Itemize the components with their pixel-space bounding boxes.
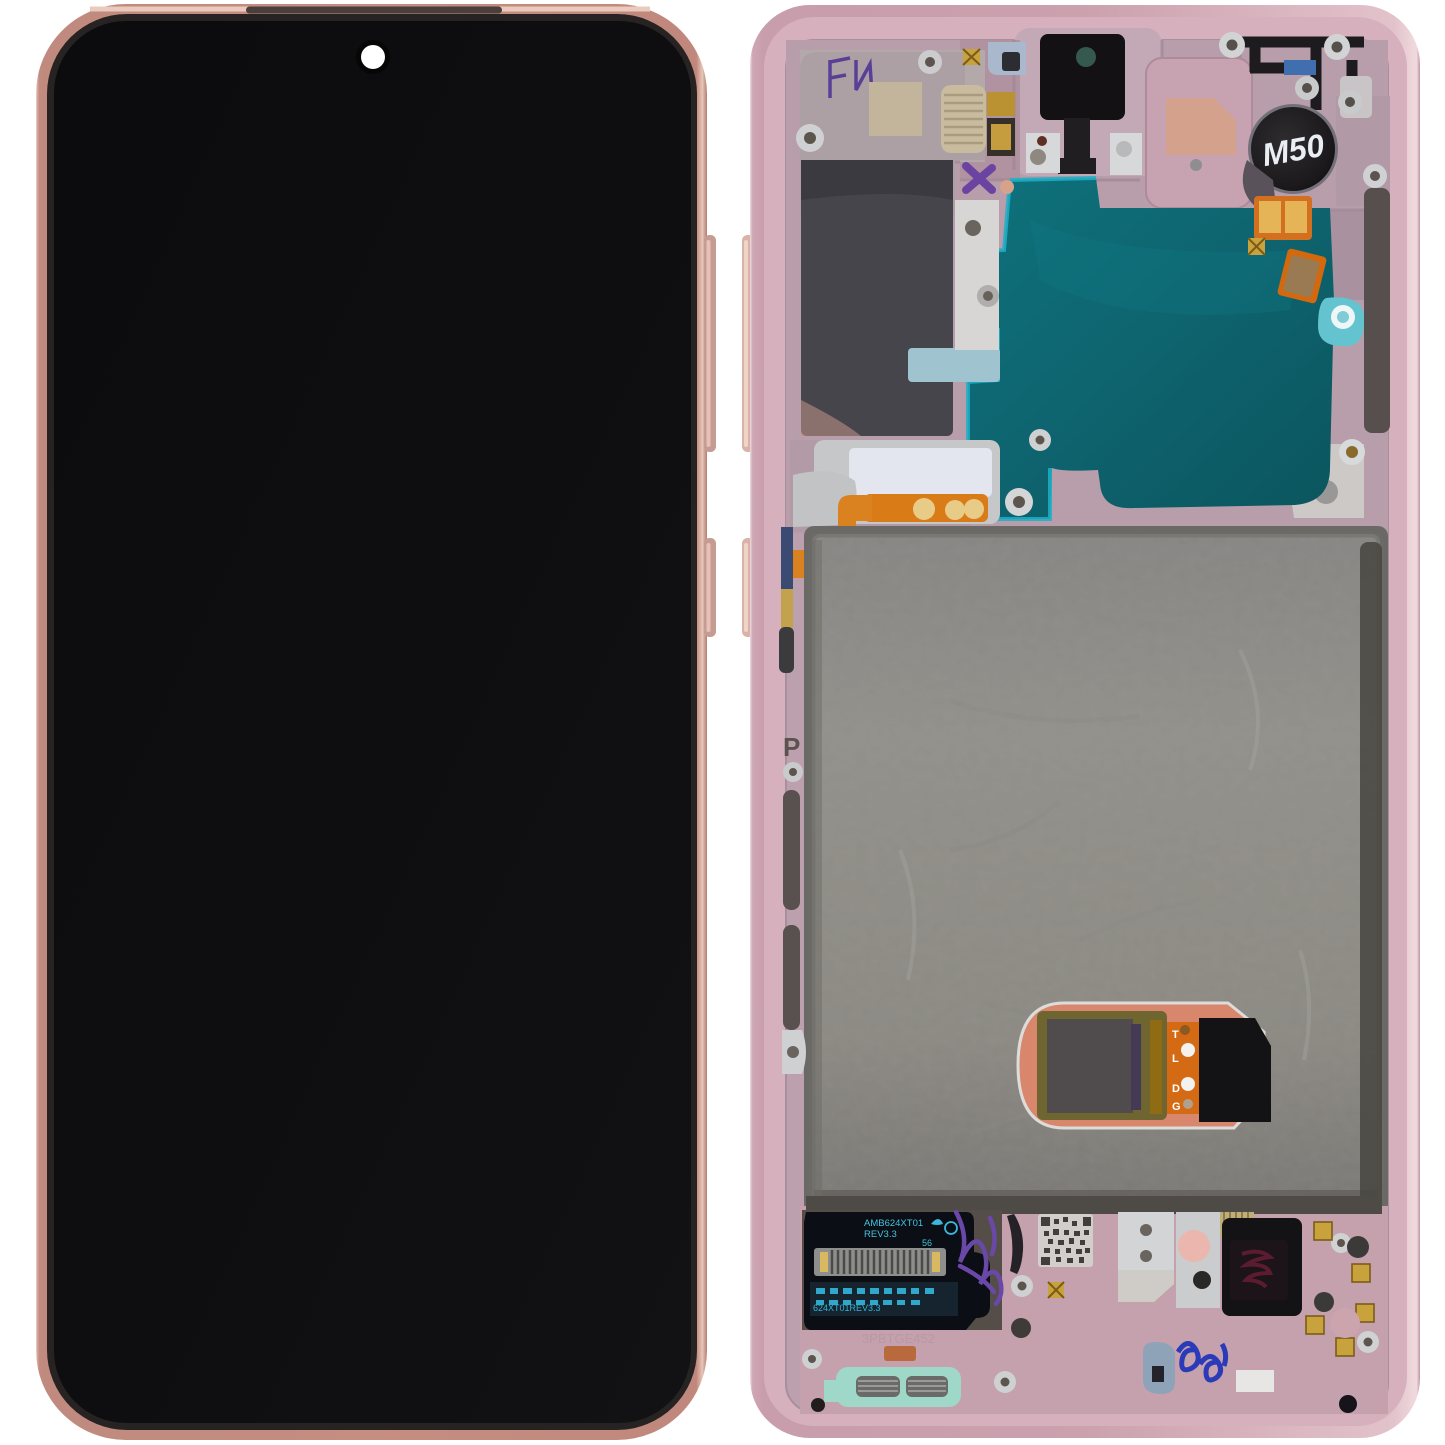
svg-text:D: D (1172, 1083, 1180, 1095)
svg-text:56: 56 (922, 1238, 932, 1248)
svg-text:T: T (1172, 1029, 1179, 1041)
svg-text:3PBTGE452: 3PBTGE452 (862, 1331, 935, 1346)
svg-text:P: P (783, 732, 800, 762)
svg-text:624XT01REV3.3: 624XT01REV3.3 (813, 1303, 881, 1313)
svg-text:G: G (1172, 1101, 1181, 1113)
svg-text:L: L (1172, 1053, 1179, 1065)
svg-text:AMB624XT01: AMB624XT01 (864, 1218, 923, 1229)
svg-text:REV3.3: REV3.3 (864, 1229, 897, 1240)
